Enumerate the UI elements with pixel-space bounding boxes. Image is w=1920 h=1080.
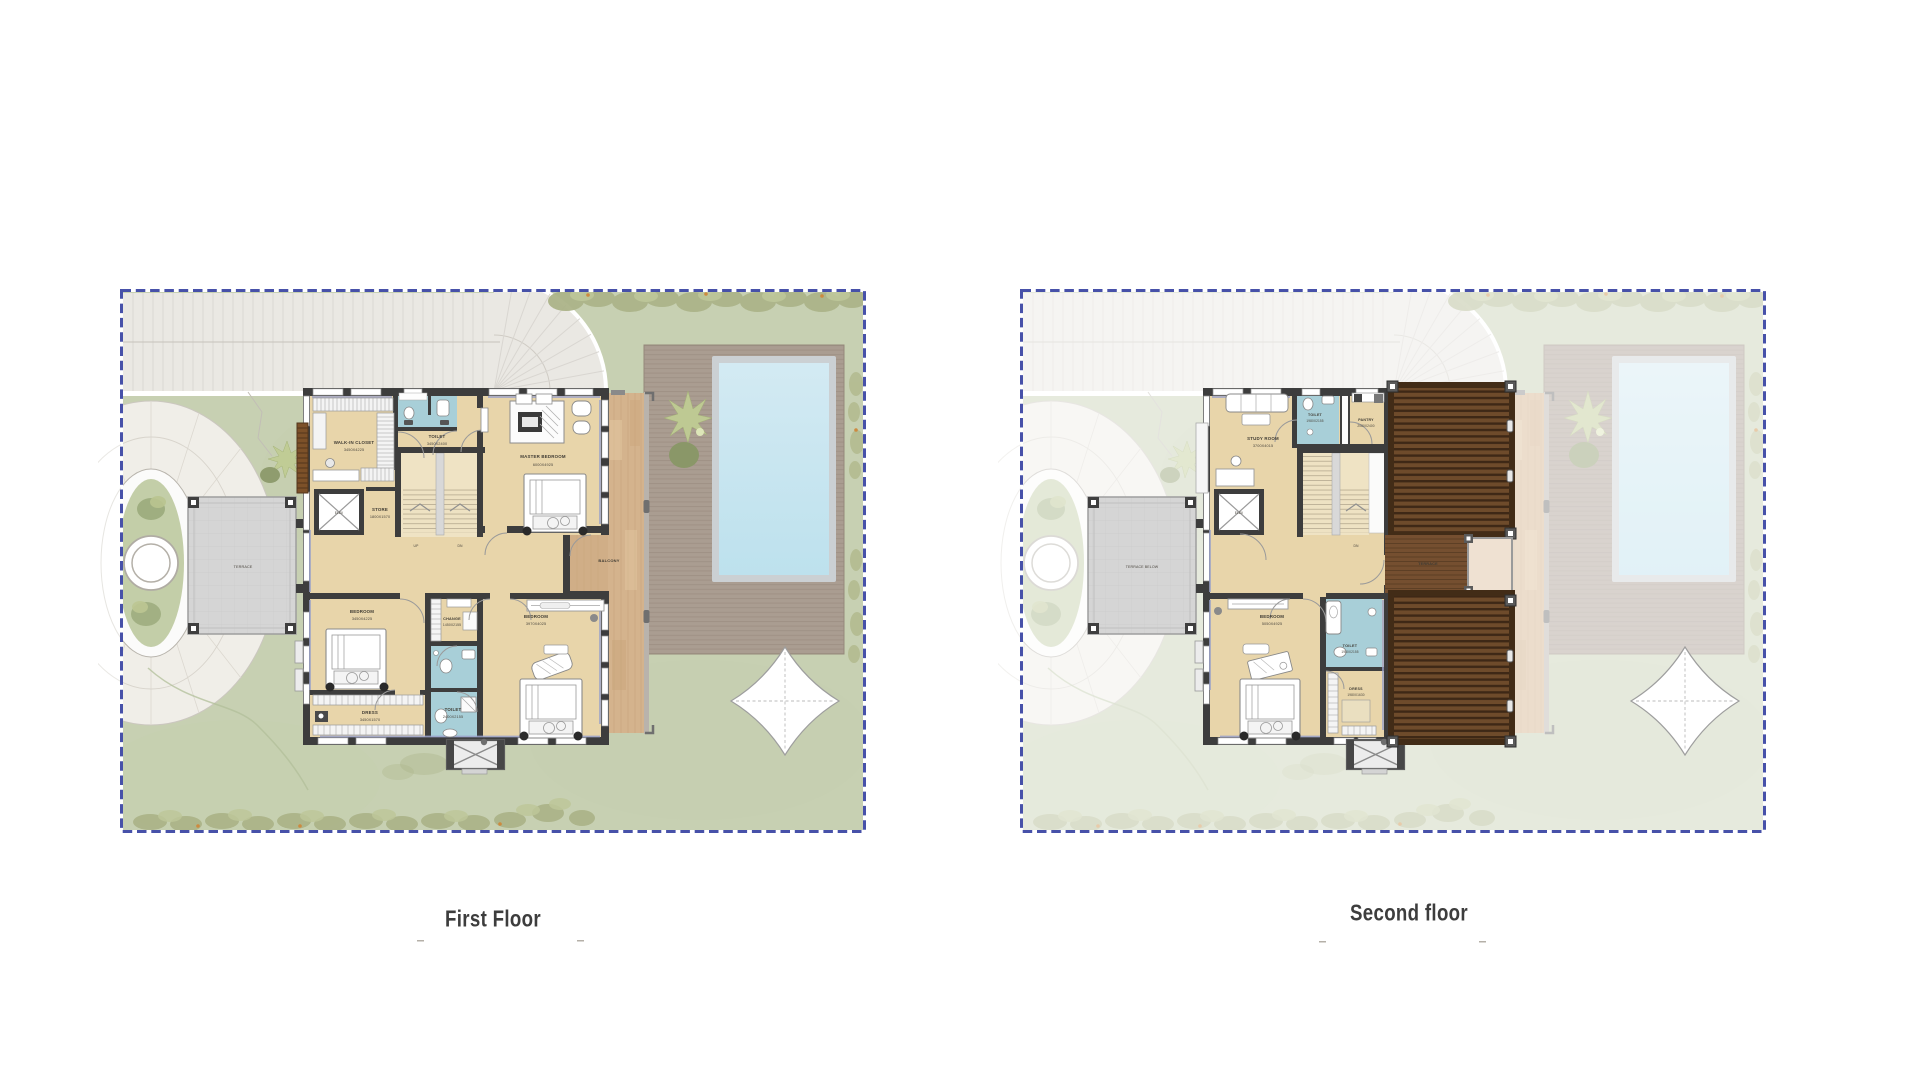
svg-text:3450X1570: 3450X1570 xyxy=(360,718,380,722)
svg-text:3450X4225: 3450X4225 xyxy=(344,448,364,452)
svg-text:STORE: STORE xyxy=(372,507,388,512)
svg-text:MASTER BEDROOM: MASTER BEDROOM xyxy=(520,454,566,459)
svg-text:TOILET: TOILET xyxy=(445,707,462,712)
svg-text:BEDROOM: BEDROOM xyxy=(1260,614,1284,619)
svg-text:BALCONY: BALCONY xyxy=(598,558,619,563)
svg-text:3970X4025: 3970X4025 xyxy=(526,622,546,626)
svg-text:1980X1630: 1980X1630 xyxy=(1347,693,1364,697)
svg-text:First Floor: First Floor xyxy=(445,906,541,932)
svg-text:ELEV: ELEV xyxy=(1235,511,1244,515)
svg-text:PANTRY: PANTRY xyxy=(1358,418,1374,422)
svg-text:BEDROOM: BEDROOM xyxy=(350,609,374,614)
svg-text:2400X2155: 2400X2155 xyxy=(443,715,463,719)
svg-text:TOILET: TOILET xyxy=(1343,644,1358,648)
svg-text:BEDROOM: BEDROOM xyxy=(524,614,548,619)
svg-text:3450X2400: 3450X2400 xyxy=(427,442,447,446)
svg-text:TERRACE BELOW: TERRACE BELOW xyxy=(1126,565,1159,569)
svg-text:TERRACE: TERRACE xyxy=(1418,562,1438,566)
svg-text:UP: UP xyxy=(414,544,420,548)
svg-text:6000X4925: 6000X4925 xyxy=(533,463,553,467)
svg-text:5050X4925: 5050X4925 xyxy=(1262,622,1282,626)
svg-text:1450X2155: 1450X2155 xyxy=(443,623,461,627)
svg-text:WALK-IN CLOSET: WALK-IN CLOSET xyxy=(334,440,375,445)
svg-text:DRESS: DRESS xyxy=(362,710,378,715)
svg-text:DN: DN xyxy=(1353,544,1359,548)
svg-text:2080X2400: 2080X2400 xyxy=(1357,424,1374,428)
svg-text:1980X2155: 1980X2155 xyxy=(1306,419,1323,423)
svg-text:TERRACE: TERRACE xyxy=(234,565,253,569)
svg-text:1800X1570: 1800X1570 xyxy=(370,515,390,519)
svg-text:TOILET: TOILET xyxy=(429,434,446,439)
svg-text:ELEV: ELEV xyxy=(335,511,344,515)
svg-text:STUDY ROOM: STUDY ROOM xyxy=(1247,436,1279,441)
svg-text:Second floor: Second floor xyxy=(1350,900,1468,926)
svg-text:CHANGE: CHANGE xyxy=(443,617,461,621)
svg-text:DN: DN xyxy=(457,544,463,548)
svg-text:TOILET: TOILET xyxy=(1308,413,1323,417)
svg-text:3700X4015: 3700X4015 xyxy=(1253,444,1273,448)
svg-text:3450X4225: 3450X4225 xyxy=(352,617,372,621)
svg-text:DRESS: DRESS xyxy=(1349,687,1363,691)
svg-text:1980X2155: 1980X2155 xyxy=(1341,650,1358,654)
